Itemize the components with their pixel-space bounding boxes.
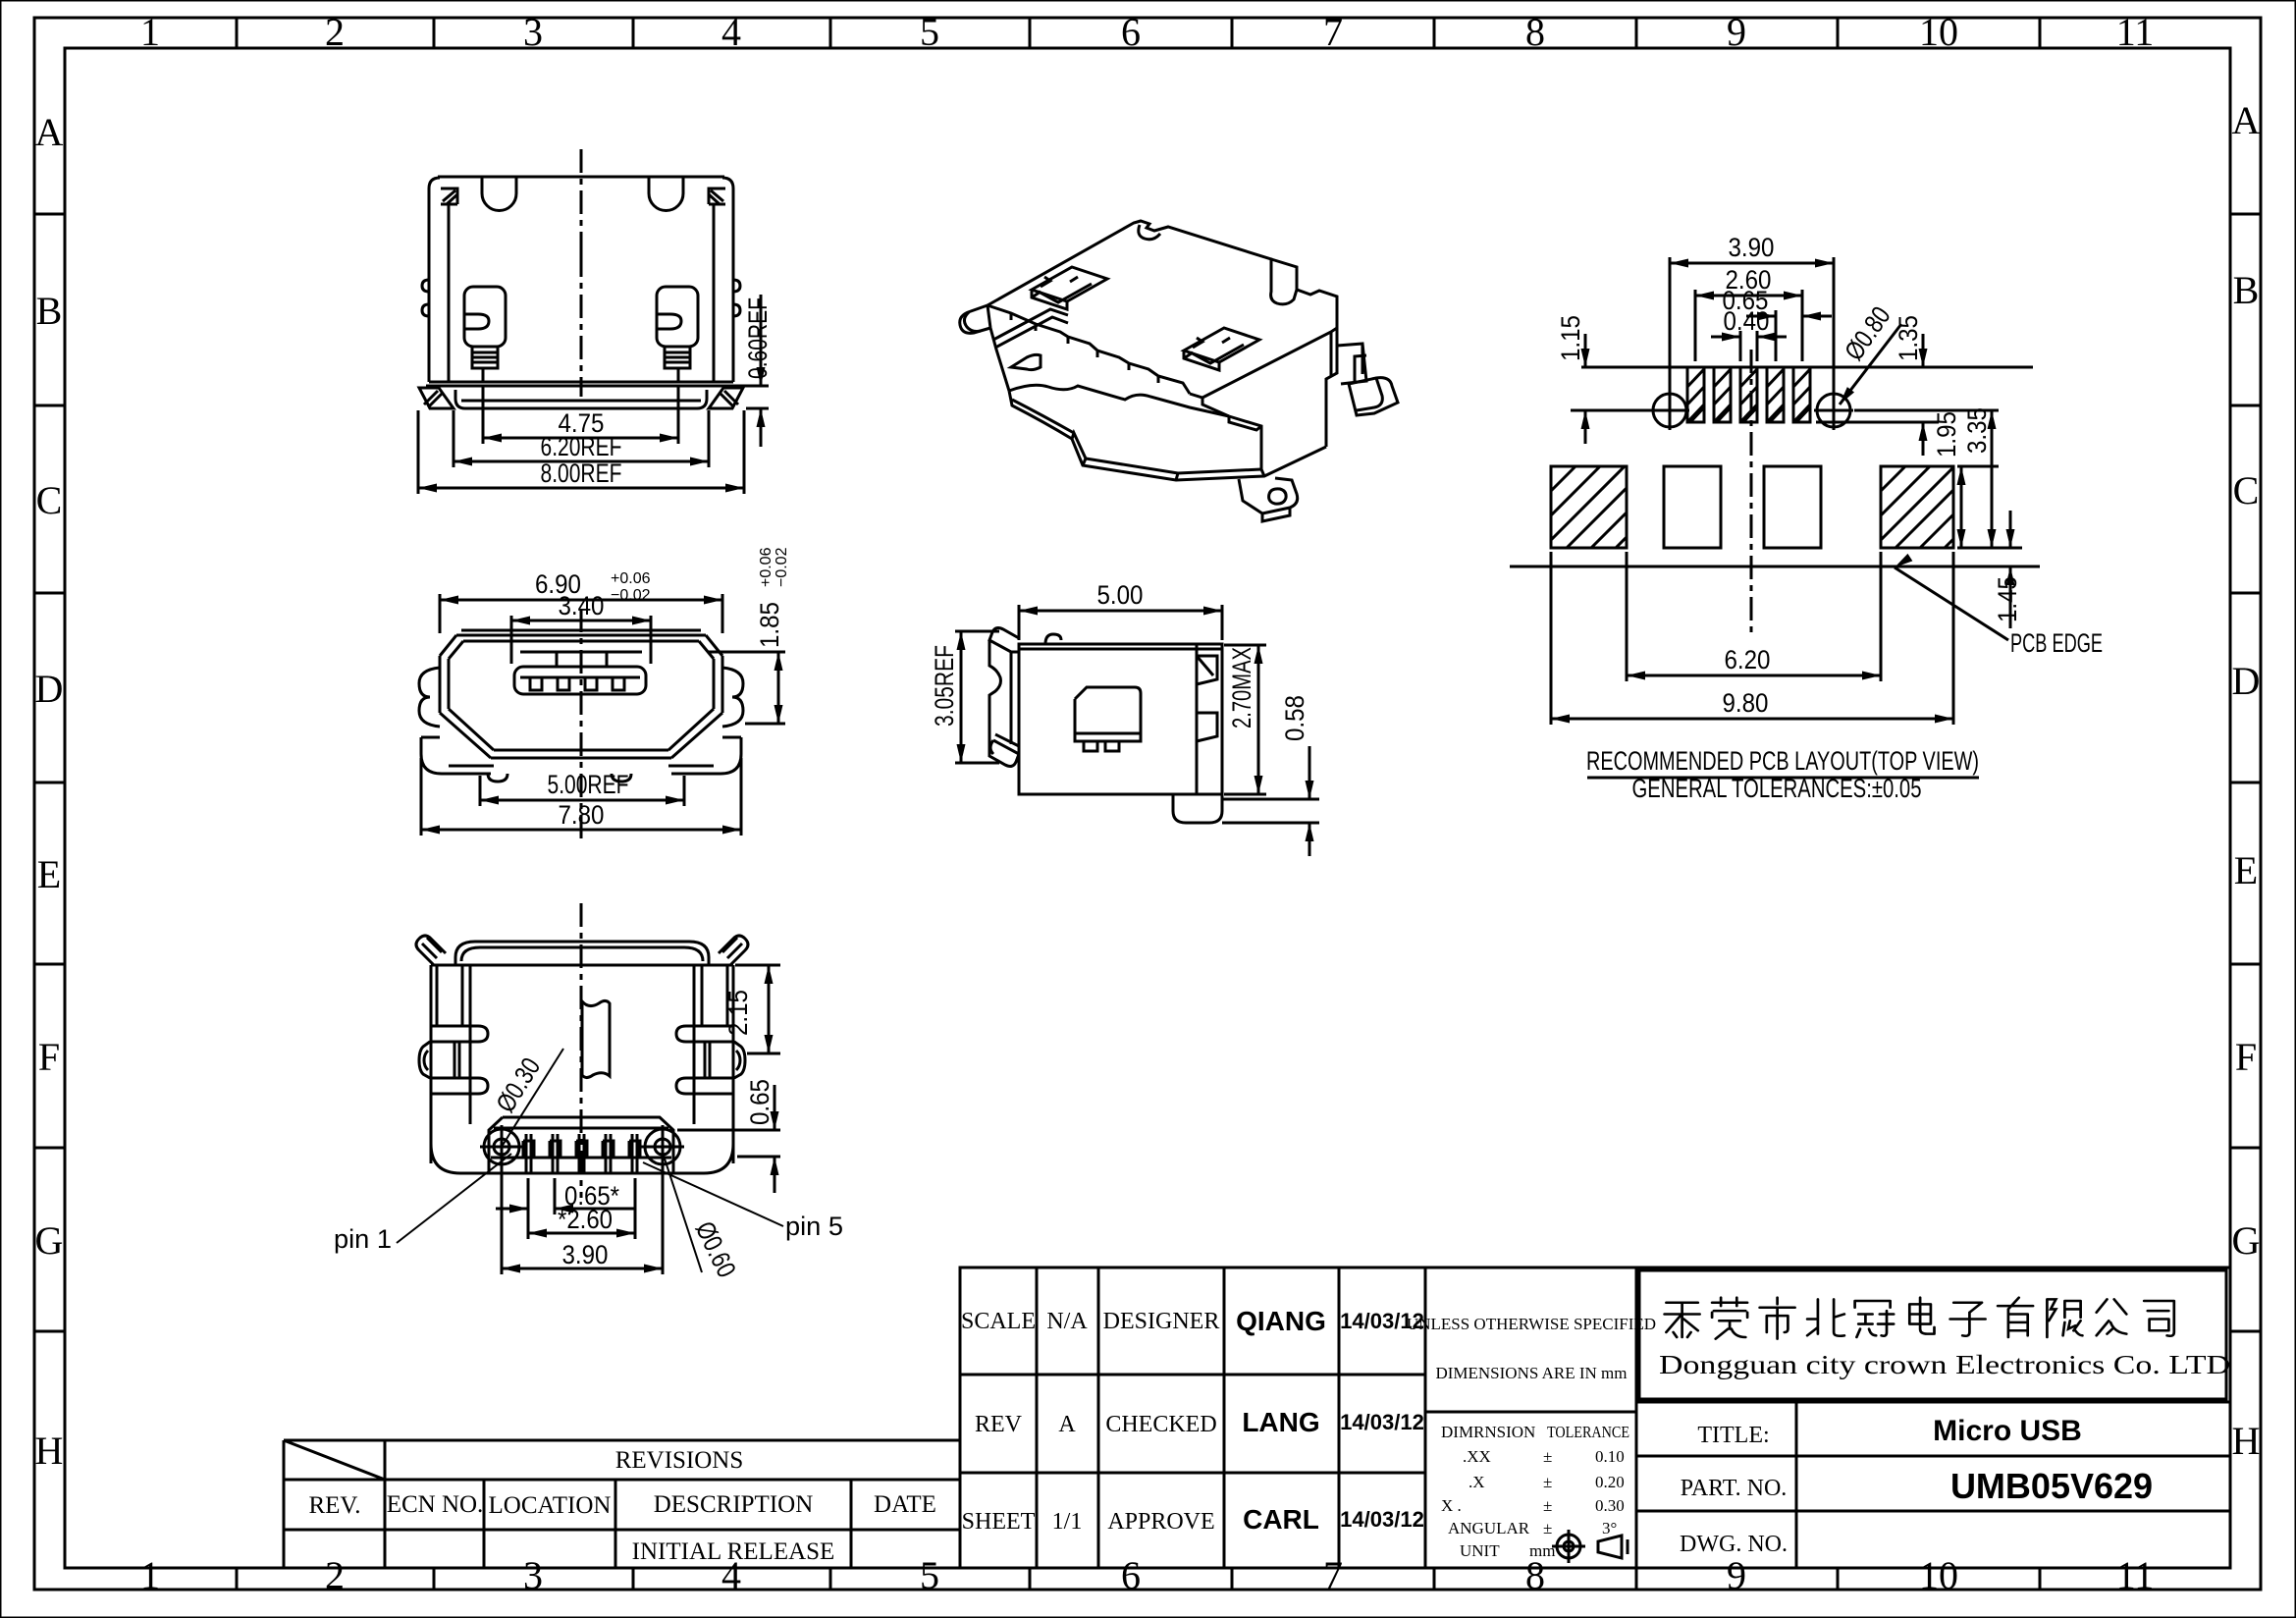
svg-text:10: 10 (1919, 10, 1958, 54)
svg-text:C: C (2233, 468, 2260, 512)
svg-text:G: G (2232, 1218, 2261, 1263)
svg-text:9: 9 (1727, 1553, 1746, 1597)
svg-text:3: 3 (523, 10, 543, 54)
svg-text:SHEET: SHEET (962, 1509, 1036, 1535)
svg-text:DIMENSIONS ARE IN mm: DIMENSIONS ARE IN mm (1435, 1364, 1627, 1382)
svg-text:A: A (35, 110, 64, 154)
svg-text:2: 2 (325, 1553, 345, 1597)
svg-text:7: 7 (1323, 10, 1343, 54)
svg-text:3°: 3° (1602, 1519, 1617, 1537)
svg-text:REV.: REV. (308, 1492, 360, 1519)
svg-text:5: 5 (920, 1553, 939, 1597)
svg-text:1.85: 1.85 (755, 602, 784, 648)
svg-text:UNIT: UNIT (1460, 1541, 1500, 1560)
svg-text:Ø0.60: Ø0.60 (690, 1216, 742, 1281)
svg-text:C: C (36, 478, 63, 522)
svg-text:0.40: 0.40 (1724, 306, 1770, 336)
svg-text:REV: REV (975, 1412, 1023, 1437)
svg-text:6.20REF: 6.20REF (541, 432, 622, 461)
svg-text:3.35: 3.35 (1962, 407, 1992, 454)
svg-text:Ø0.80: Ø0.80 (1839, 301, 1896, 366)
svg-text:DWG. NO.: DWG. NO. (1680, 1532, 1788, 1557)
svg-text:GENERAL TOLERANCES:±0.05: GENERAL TOLERANCES:±0.05 (1632, 774, 1922, 803)
svg-text:X .: X . (1441, 1496, 1462, 1515)
svg-text:3.40: 3.40 (559, 591, 605, 620)
svg-text:9.80: 9.80 (1723, 688, 1769, 718)
svg-text:Dongguan city crown Electronic: Dongguan city crown Electronics Co. LTD (1659, 1350, 2230, 1379)
svg-text:3.90: 3.90 (562, 1240, 609, 1269)
svg-text:ANGULAR: ANGULAR (1448, 1519, 1530, 1537)
svg-text:3.05REF: 3.05REF (930, 645, 959, 727)
svg-text:*2.60: *2.60 (558, 1205, 613, 1234)
svg-text:2: 2 (325, 10, 345, 54)
svg-text:7.80: 7.80 (559, 800, 605, 830)
svg-text:D: D (2232, 659, 2261, 703)
svg-text:H: H (2232, 1419, 2261, 1463)
svg-text:APPROVE: APPROVE (1107, 1509, 1214, 1535)
svg-text:+0.06: +0.06 (758, 547, 774, 587)
svg-text:6: 6 (1121, 10, 1141, 54)
svg-text:pin 1: pin 1 (334, 1224, 392, 1254)
svg-text:pin 5: pin 5 (785, 1212, 843, 1241)
svg-text:1.95: 1.95 (1932, 411, 1961, 458)
svg-text:4: 4 (721, 10, 741, 54)
svg-text:A: A (1058, 1412, 1076, 1437)
svg-text:Micro USB: Micro USB (1933, 1415, 2082, 1447)
svg-text:TITLE:: TITLE: (1697, 1423, 1769, 1448)
svg-text:QIANG: QIANG (1236, 1306, 1326, 1336)
svg-text:B: B (36, 289, 63, 333)
svg-text:14/03/12: 14/03/12 (1340, 1410, 1424, 1434)
svg-text:5.00REF: 5.00REF (548, 770, 629, 799)
svg-text:−0.02: −0.02 (774, 547, 790, 587)
svg-text:3: 3 (523, 1553, 543, 1597)
svg-text:INITIAL RELEASE: INITIAL RELEASE (632, 1538, 835, 1565)
svg-text:.XX: .XX (1463, 1447, 1491, 1466)
svg-text:LANG: LANG (1242, 1407, 1319, 1437)
svg-text:1: 1 (140, 1553, 160, 1597)
svg-text:6: 6 (1121, 1553, 1141, 1597)
svg-text:CHECKED: CHECKED (1105, 1412, 1216, 1437)
svg-text:8.00REF: 8.00REF (541, 458, 622, 488)
svg-text:±: ± (1543, 1473, 1552, 1491)
svg-text:11: 11 (2116, 10, 2155, 54)
svg-text:±: ± (1543, 1447, 1552, 1466)
svg-text:E: E (37, 852, 61, 896)
svg-text:N/A: N/A (1046, 1309, 1088, 1334)
svg-text:F: F (38, 1035, 60, 1079)
svg-text:G: G (35, 1218, 64, 1263)
svg-text:2.15: 2.15 (723, 990, 753, 1036)
svg-text:0.60REF: 0.60REF (743, 297, 773, 379)
svg-text:1.45: 1.45 (1993, 576, 2022, 622)
svg-text:DESIGNER: DESIGNER (1103, 1309, 1220, 1334)
svg-text:9: 9 (1727, 10, 1746, 54)
svg-text:UMB05V629: UMB05V629 (1950, 1466, 2153, 1506)
svg-text:D: D (35, 667, 64, 711)
svg-text:0.30: 0.30 (1595, 1496, 1625, 1515)
svg-text:TOLERANCE: TOLERANCE (1547, 1423, 1629, 1441)
svg-text:DIMRNSION: DIMRNSION (1441, 1423, 1535, 1441)
svg-text:Ø0.30: Ø0.30 (491, 1052, 547, 1117)
svg-text:10: 10 (1919, 1553, 1958, 1597)
svg-text:DESCRIPTION: DESCRIPTION (654, 1491, 814, 1518)
svg-text:RECOMMENDED PCB LAYOUT(TOP VIE: RECOMMENDED PCB LAYOUT(TOP VIEW) (1586, 746, 1979, 776)
svg-text:1.35: 1.35 (1894, 315, 1923, 361)
svg-text:3.90: 3.90 (1729, 233, 1775, 262)
svg-text:LOCATION: LOCATION (489, 1492, 612, 1519)
svg-text:+0.06: +0.06 (611, 570, 651, 587)
svg-text:0.10: 0.10 (1595, 1447, 1625, 1466)
svg-text:0.20: 0.20 (1595, 1473, 1625, 1491)
svg-text:UNLESS OTHERWISE SPECIFIED: UNLESS OTHERWISE SPECIFIED (1407, 1315, 1656, 1333)
svg-text:6.20: 6.20 (1725, 645, 1771, 674)
svg-text:H: H (35, 1429, 64, 1473)
svg-text:B: B (2233, 268, 2260, 312)
svg-text:REVISIONS: REVISIONS (615, 1447, 744, 1474)
svg-text:11: 11 (2116, 1553, 2155, 1597)
svg-text:SCALE: SCALE (961, 1309, 1036, 1334)
svg-text:DATE: DATE (874, 1491, 936, 1518)
svg-text:1.15: 1.15 (1556, 315, 1585, 361)
svg-text:E: E (2234, 848, 2258, 892)
svg-text:1: 1 (140, 10, 160, 54)
svg-text:F: F (2235, 1035, 2257, 1079)
svg-text:2.70MAX: 2.70MAX (1227, 647, 1256, 728)
svg-text:8: 8 (1525, 10, 1545, 54)
svg-text:PART. NO.: PART. NO. (1681, 1476, 1788, 1501)
svg-text:0.58: 0.58 (1280, 695, 1309, 741)
svg-text:0.65: 0.65 (745, 1079, 774, 1125)
svg-text:±: ± (1543, 1496, 1552, 1515)
svg-text:5: 5 (920, 10, 939, 54)
svg-text:.X: .X (1468, 1473, 1485, 1491)
svg-text:CARL: CARL (1243, 1504, 1319, 1535)
svg-text:A: A (2232, 98, 2261, 142)
svg-text:5.00: 5.00 (1097, 580, 1144, 610)
svg-text:ECN NO.: ECN NO. (387, 1491, 484, 1518)
svg-text:mm: mm (1529, 1541, 1555, 1560)
svg-text:14/03/12: 14/03/12 (1340, 1507, 1424, 1532)
svg-text:±: ± (1543, 1519, 1552, 1537)
svg-text:1/1: 1/1 (1052, 1509, 1083, 1535)
svg-text:PCB EDGE: PCB EDGE (2010, 628, 2103, 658)
svg-text:−0.02: −0.02 (611, 587, 651, 604)
